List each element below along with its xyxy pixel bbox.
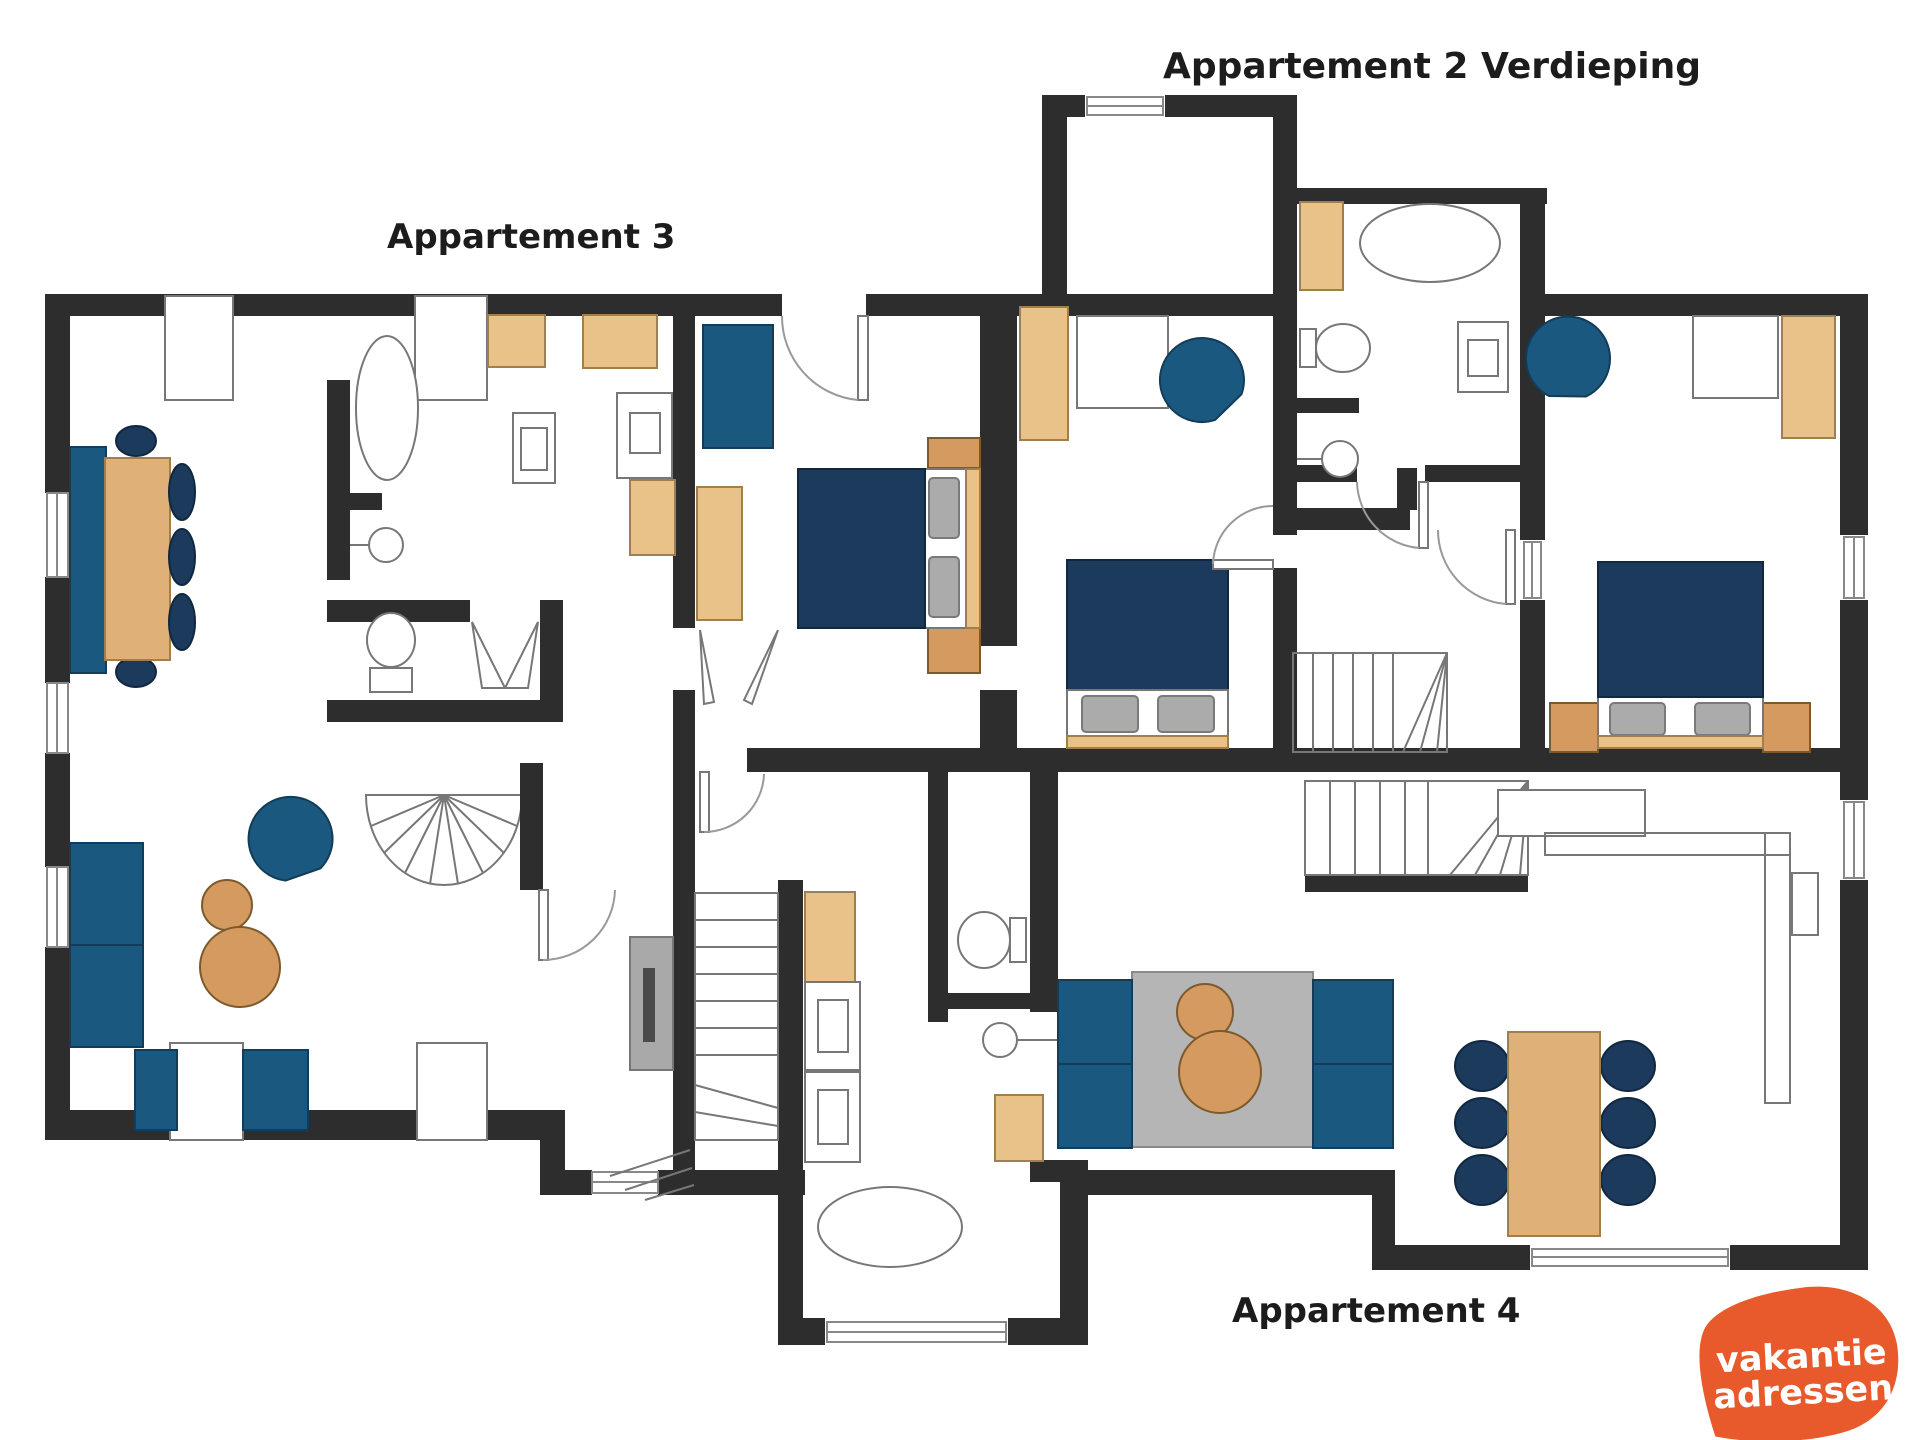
kitchen-counter xyxy=(805,982,860,1070)
bathroom-cabinet xyxy=(415,296,487,400)
kitchen-island xyxy=(1498,790,1645,836)
door-leaf xyxy=(1213,560,1273,569)
wardrobe xyxy=(583,315,657,368)
door-leaf xyxy=(1419,482,1428,548)
pillow xyxy=(1158,696,1214,732)
nightstand xyxy=(928,628,980,673)
pillow xyxy=(1695,703,1750,735)
pillow xyxy=(929,557,959,617)
pillow xyxy=(1610,703,1665,735)
door-leaf xyxy=(505,622,538,688)
dining-chair xyxy=(116,426,156,456)
door-leaf xyxy=(1506,530,1515,604)
washstand xyxy=(617,393,672,478)
door-leaf xyxy=(744,630,778,704)
bedroom-rug xyxy=(703,325,773,448)
sink xyxy=(983,1023,1017,1057)
bath-cabinet xyxy=(1300,202,1343,290)
sink xyxy=(369,528,403,562)
dining-chair xyxy=(1601,1041,1655,1091)
side-table xyxy=(200,927,280,1007)
lounge-chair xyxy=(237,785,343,889)
sink xyxy=(1322,441,1358,477)
stair-app2 xyxy=(1293,653,1447,752)
bathtub xyxy=(1360,204,1500,282)
desk xyxy=(1077,316,1168,408)
stair-app4 xyxy=(1305,781,1528,875)
floor-plan-page: Appartement 3 Appartement 2 Verdieping A… xyxy=(0,0,1920,1440)
toilet xyxy=(367,613,415,692)
double-bed xyxy=(1067,560,1228,690)
wardrobe xyxy=(697,487,742,620)
pillow xyxy=(1082,696,1138,732)
nightstand xyxy=(1763,703,1810,752)
lounge-chair xyxy=(1526,317,1610,397)
kitchen-counter xyxy=(1765,833,1790,1103)
dining-table xyxy=(105,458,170,660)
door-leaf xyxy=(472,622,505,688)
dining-chair xyxy=(1455,1041,1509,1091)
dining-chair xyxy=(169,464,195,520)
label-apartment4: Appartement 4 xyxy=(1232,1291,1520,1331)
bathtub xyxy=(356,336,418,480)
double-bed xyxy=(798,469,925,628)
bath-cabinet xyxy=(995,1095,1043,1161)
label-apartment2: Appartement 2 Verdieping xyxy=(1163,46,1701,87)
door-leaf xyxy=(858,316,868,400)
dining-chair xyxy=(1455,1155,1509,1205)
nightstand xyxy=(1550,703,1598,752)
kitchen-counter xyxy=(805,1072,860,1162)
nightstand xyxy=(928,438,980,468)
logo-vakantieadressen: vakantie adressen xyxy=(1696,1282,1902,1440)
wardrobe xyxy=(1782,316,1835,438)
double-bed xyxy=(1598,562,1763,697)
toilet xyxy=(958,912,1026,968)
shower xyxy=(513,413,555,483)
cupboard xyxy=(165,296,233,400)
shower xyxy=(1458,322,1508,392)
dining-chair xyxy=(116,657,156,687)
kitchen-cabinet xyxy=(805,892,855,982)
wardrobe xyxy=(1020,307,1068,440)
armchair xyxy=(135,1050,177,1130)
wardrobe xyxy=(488,315,545,367)
door-leaf xyxy=(700,630,714,704)
dining-chair xyxy=(169,529,195,585)
door-leaf xyxy=(700,772,709,832)
dining-table xyxy=(1508,1032,1600,1236)
label-apartment3: Appartement 3 xyxy=(387,217,675,257)
wardrobe xyxy=(630,480,675,555)
pillow xyxy=(929,478,959,538)
dining-chair xyxy=(169,594,195,650)
toilet xyxy=(1300,324,1370,372)
dining-chair xyxy=(1455,1098,1509,1148)
dining-bench xyxy=(70,447,106,673)
side-table xyxy=(202,880,252,930)
coffee-table xyxy=(1179,1031,1261,1113)
door-leaf xyxy=(539,890,548,960)
dining-chair xyxy=(1601,1155,1655,1205)
desk xyxy=(1693,316,1778,398)
bathtub xyxy=(818,1187,962,1267)
dining-chair xyxy=(1601,1098,1655,1148)
floor-plan: Appartement 3 Appartement 2 Verdieping A… xyxy=(0,0,1920,1440)
spiral-stair xyxy=(366,795,522,885)
armchair xyxy=(243,1050,308,1130)
radiator xyxy=(1792,873,1818,935)
